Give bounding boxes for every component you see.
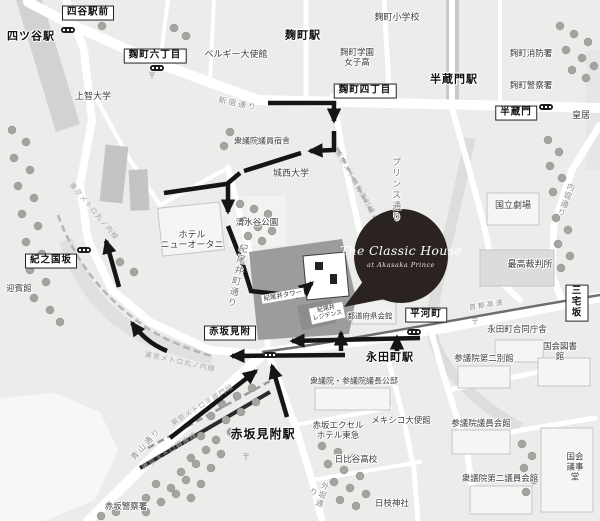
station-entrance-icon: [539, 104, 553, 110]
map-label: 国会議事堂: [563, 452, 588, 481]
map-label: 衆議院第二議員会館: [462, 474, 539, 484]
map-label: 内堀通り: [556, 182, 577, 219]
map-label: 衆議院・参議院議長公邸: [310, 376, 398, 385]
map-label: 赤坂警察署: [105, 502, 148, 512]
map-label: 都道府県会館: [348, 313, 393, 322]
map-label: 国会図書館: [540, 342, 580, 362]
map-label: 東京メトロ丸ノ内線: [144, 352, 216, 375]
map-label: 麹町消防署: [510, 49, 553, 59]
map-label: 外堀通り: [305, 477, 331, 509]
map-label: 皇居: [572, 110, 590, 120]
map-label: 三宅坂: [566, 285, 589, 322]
map-label: 麹町六丁目: [124, 49, 187, 64]
map-label: 国立劇場: [495, 200, 531, 210]
map-label: 紀尾井 レジデンス: [309, 302, 345, 324]
map-label: メキシコ大使館: [371, 416, 431, 426]
map-label: 首都高速: [469, 299, 506, 313]
map-label: 衆議院議員宿舎: [234, 136, 290, 145]
map-label: 永田町合同庁舎: [487, 325, 547, 335]
map-label: 新宿通り: [217, 95, 258, 112]
map-label: 赤坂見附駅: [230, 428, 295, 442]
map-label: 上智大学: [75, 91, 111, 101]
map-label: 東京メトロ半蔵門線: [170, 384, 235, 429]
map-label: 赤坂エクセル ホテル東急: [312, 421, 363, 441]
station-entrance-icon: [150, 65, 164, 71]
map-label: 麹町駅: [285, 30, 321, 43]
station-entrance-icon: [61, 27, 75, 33]
map-label: 日比谷高校: [335, 455, 378, 465]
map-label: ホテル ニューオータニ: [160, 230, 223, 251]
map-label: 青山通り: [129, 426, 163, 462]
map-label: 紀尾井町通り: [225, 243, 249, 310]
map-label: 麹町小学校: [374, 12, 419, 22]
map-label: 平河町: [405, 308, 447, 323]
map-label: 紀尾井タワー: [261, 288, 305, 305]
map-label: ベルギー大使館: [204, 49, 267, 59]
map-label: 東京メトロ有楽町線: [333, 150, 376, 216]
map-label: 麹町学園 女子高: [340, 48, 374, 68]
map-label: 麹町警察署: [510, 81, 553, 91]
map-labels-layer: 四谷駅前麹町六丁目麹町四丁目半蔵門紀之国坂赤坂見附平河町三宅坂四ツ谷駅麹町駅半蔵…: [0, 0, 600, 521]
map-label: 〒: [242, 452, 250, 461]
map-label: 〒: [471, 317, 479, 326]
map-label: 半蔵門駅: [430, 74, 478, 87]
station-entrance-icon: [263, 352, 277, 358]
map-label: 東京メトロ丸ノ内線: [67, 182, 119, 242]
map-label: 清水谷公園: [236, 218, 279, 228]
map-label: 永田町駅: [366, 352, 414, 365]
map-label: 参議院第二別館: [454, 354, 514, 364]
map-label: 最高裁判所: [507, 259, 552, 269]
map-label: 四谷駅前: [62, 6, 114, 21]
map-label: 半蔵門: [495, 106, 537, 121]
map-label: 〒: [148, 71, 156, 80]
map-label: 参議院議員会館: [451, 419, 511, 429]
map-label: 東京メトロ銀座線: [141, 432, 200, 473]
station-entrance-icon: [77, 247, 91, 253]
map-label: 日枝神社: [375, 499, 409, 509]
map-label: 赤坂見附: [204, 326, 256, 341]
map-label: 麹町四丁目: [334, 84, 397, 99]
station-entrance-icon: [407, 329, 421, 335]
map-label: 迎賓館: [6, 284, 32, 294]
access-map: The Classic House at Akasaka Prince 四谷駅前…: [0, 0, 600, 521]
map-label: 紀之国坂: [25, 254, 77, 269]
map-label: プリンス通り: [391, 157, 401, 223]
map-label: 四ツ谷駅: [7, 31, 55, 44]
map-label: 城西大学: [273, 168, 309, 178]
